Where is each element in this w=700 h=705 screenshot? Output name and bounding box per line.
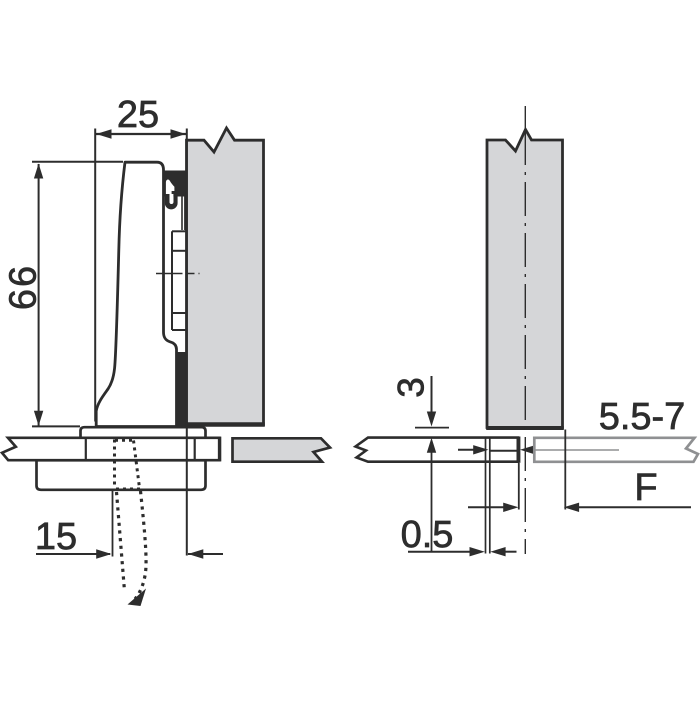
svg-text:15: 15	[35, 516, 77, 558]
svg-text:3: 3	[391, 377, 432, 398]
svg-text:25: 25	[117, 94, 159, 136]
svg-text:0.5: 0.5	[401, 514, 454, 556]
svg-text:5.5-7: 5.5-7	[599, 396, 686, 438]
svg-text:F: F	[634, 467, 657, 509]
